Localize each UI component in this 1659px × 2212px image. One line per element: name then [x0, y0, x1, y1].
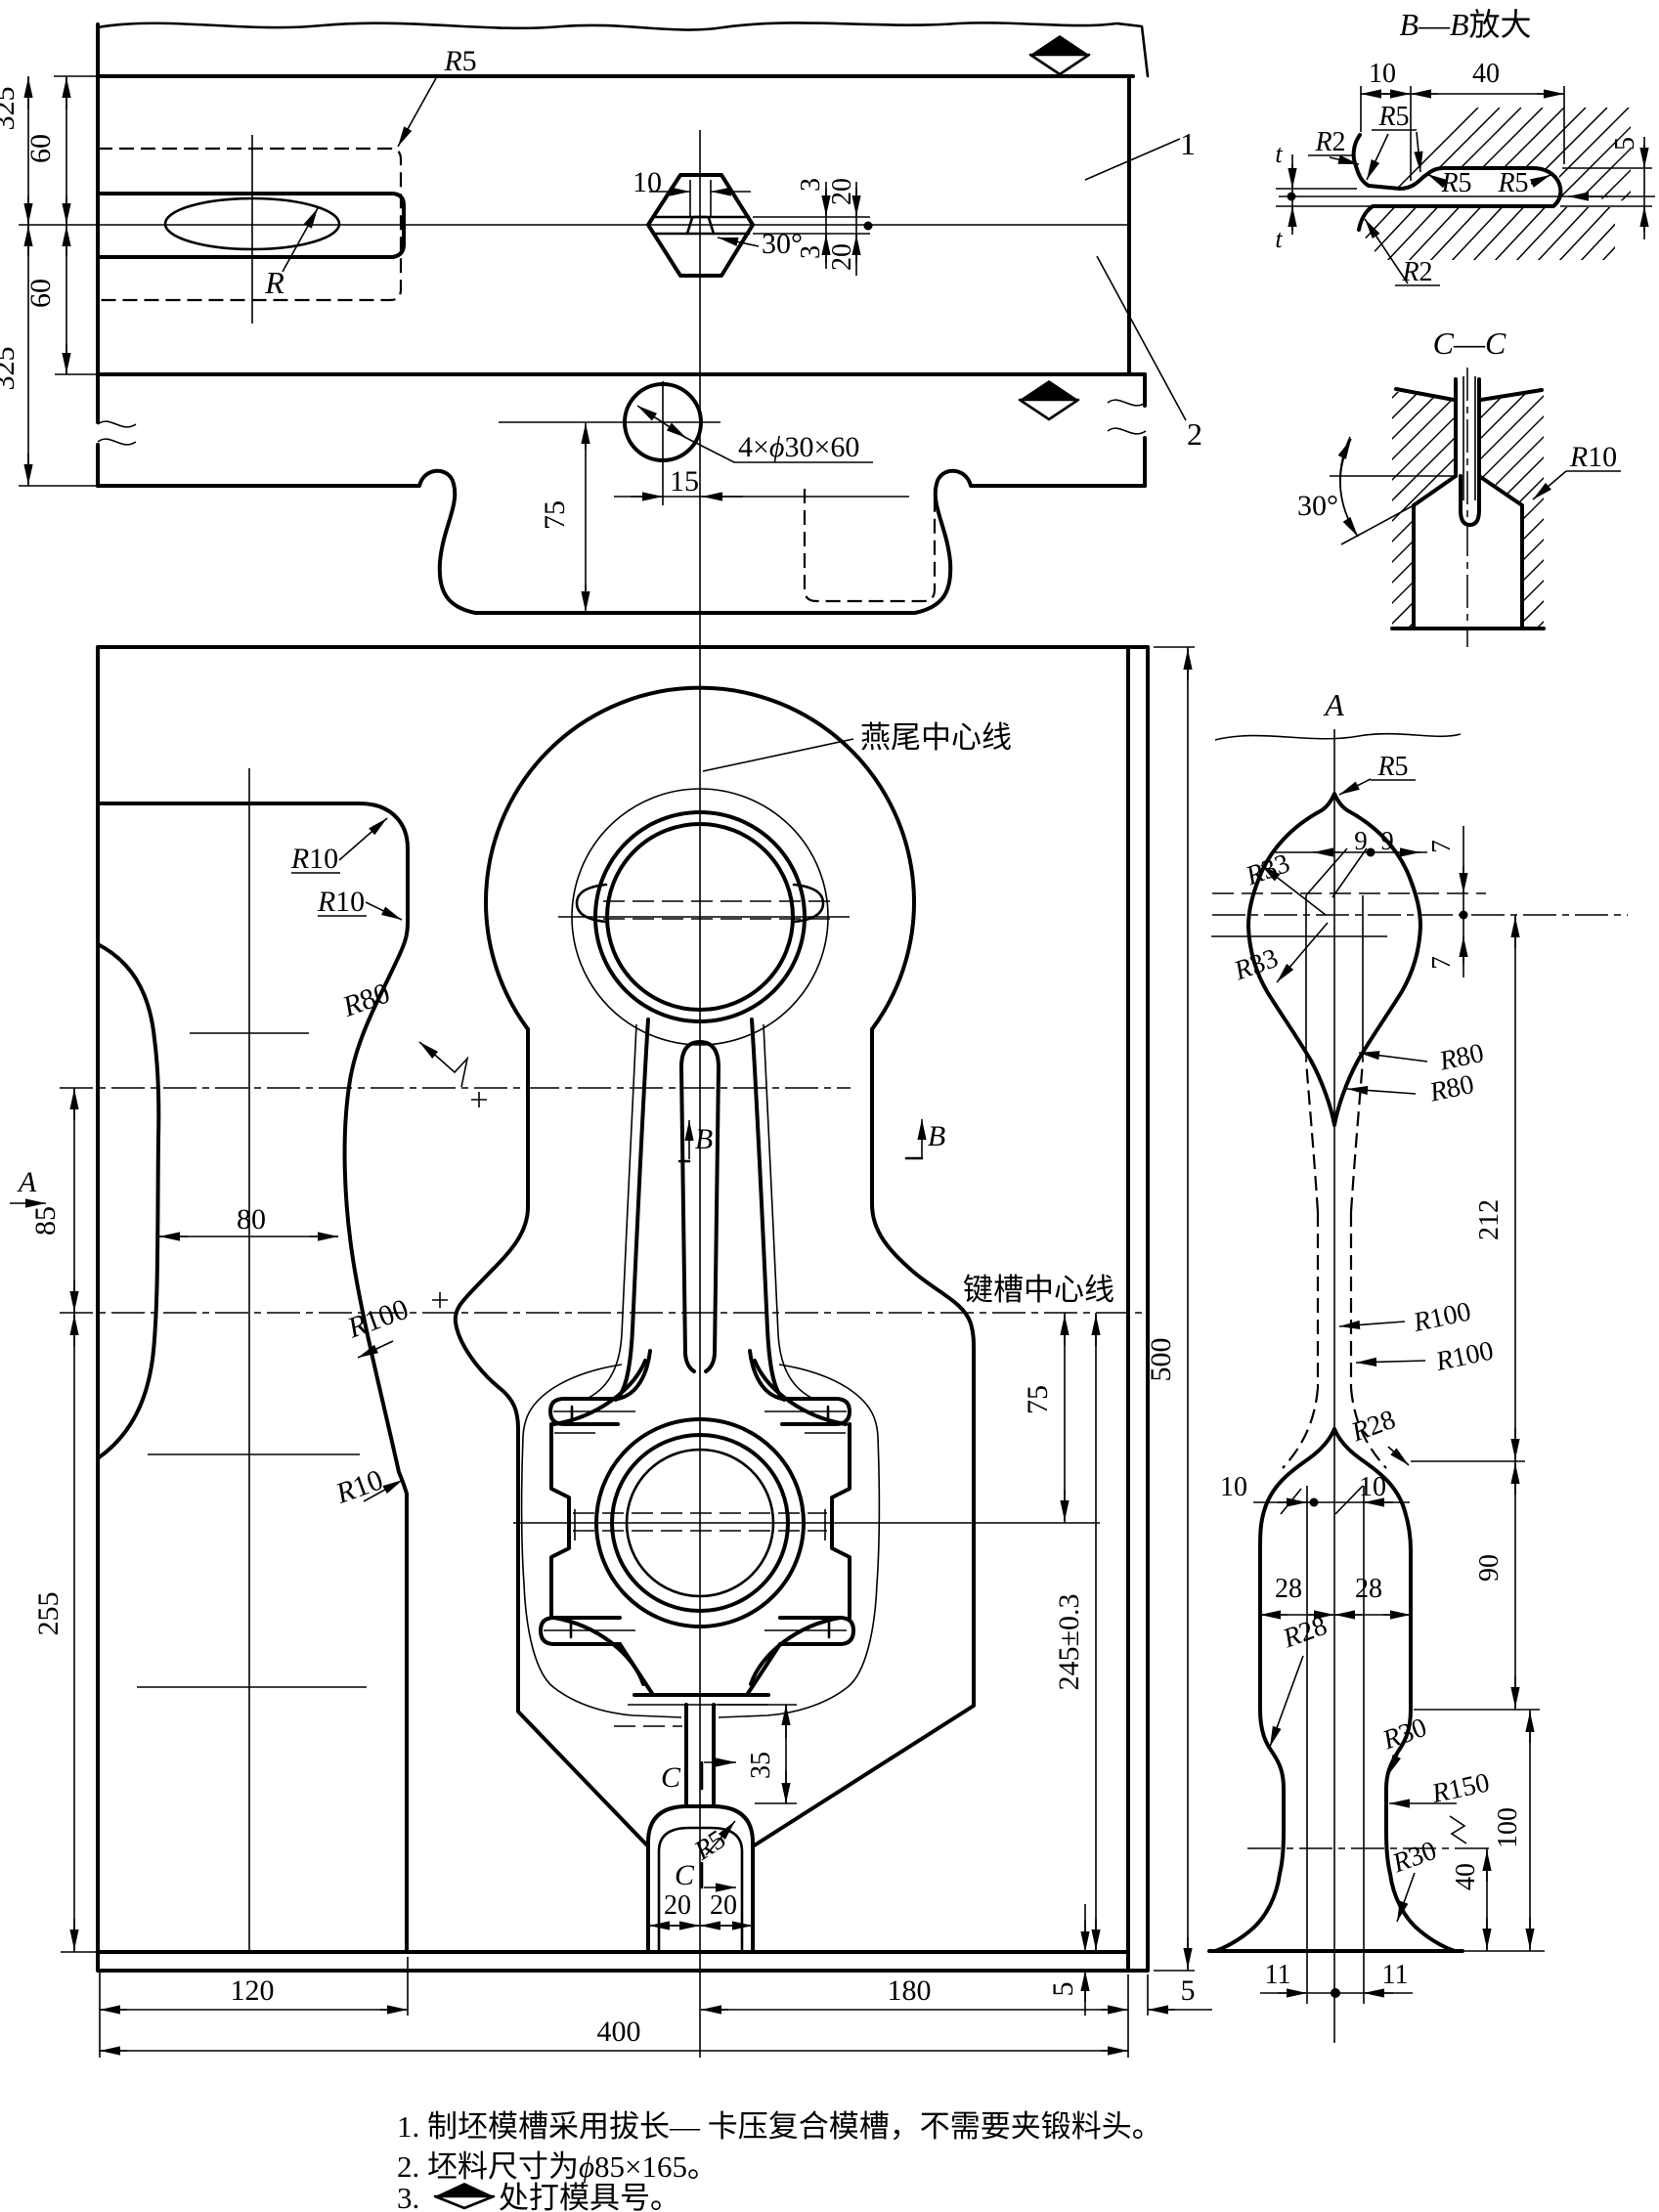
svg-text:325: 325	[0, 347, 21, 391]
svg-text:7: 7	[1426, 840, 1456, 853]
svg-text:4×ϕ30×60: 4×ϕ30×60	[738, 431, 859, 463]
svg-text:20: 20	[710, 1890, 737, 1921]
svg-text:R5: R5	[1377, 102, 1409, 132]
svg-text:5: 5	[1047, 1982, 1079, 1997]
svg-text:245±0.3: 245±0.3	[1053, 1594, 1085, 1691]
svg-text:7: 7	[1426, 956, 1456, 970]
svg-text:20: 20	[827, 243, 857, 271]
svg-text:28: 28	[1355, 1574, 1382, 1604]
svg-text:t: t	[1275, 140, 1283, 168]
svg-text:11: 11	[1265, 1960, 1291, 1990]
svg-text:B: B	[928, 1120, 945, 1152]
svg-text:212: 212	[1474, 1199, 1505, 1240]
svg-text:90: 90	[1474, 1554, 1505, 1582]
svg-text:75: 75	[539, 500, 571, 530]
svg-text:9: 9	[1380, 826, 1394, 855]
svg-text:5: 5	[1610, 137, 1640, 151]
svg-text:R10: R10	[1569, 441, 1617, 473]
svg-text:60: 60	[24, 134, 57, 163]
svg-text:120: 120	[231, 1974, 275, 2007]
svg-text:10: 10	[1220, 1472, 1247, 1502]
svg-text:325: 325	[0, 87, 21, 131]
svg-text:A: A	[17, 1166, 37, 1198]
svg-text:180: 180	[888, 1974, 932, 2007]
svg-text:10: 10	[1369, 59, 1396, 89]
svg-text:30°: 30°	[762, 228, 803, 260]
svg-text:85: 85	[29, 1206, 62, 1236]
svg-text:40: 40	[1451, 1863, 1481, 1890]
svg-text:400: 400	[597, 2016, 641, 2048]
svg-text:C: C	[661, 1761, 681, 1794]
svg-text:35: 35	[746, 1752, 776, 1779]
svg-text:15: 15	[670, 465, 699, 498]
svg-text:R2: R2	[1314, 127, 1345, 157]
svg-text:3.: 3.	[397, 2181, 419, 2212]
svg-text:R5: R5	[443, 45, 476, 77]
svg-text:5: 5	[1181, 1974, 1196, 2007]
svg-text:80: 80	[237, 1203, 266, 1236]
svg-text:3: 3	[796, 178, 826, 192]
svg-text:28: 28	[1275, 1574, 1302, 1604]
svg-text:60: 60	[24, 279, 57, 308]
svg-text:t: t	[1275, 225, 1283, 253]
svg-text:2: 2	[1187, 416, 1202, 452]
svg-text:B: B	[695, 1123, 713, 1155]
svg-text:500: 500	[1145, 1338, 1177, 1382]
svg-text:75: 75	[1022, 1385, 1054, 1414]
svg-text:10: 10	[633, 166, 662, 198]
svg-text:255: 255	[32, 1592, 65, 1636]
svg-text:40: 40	[1472, 59, 1500, 89]
svg-text:R5: R5	[1497, 168, 1528, 198]
svg-text:R5: R5	[1376, 752, 1408, 782]
svg-text:R2: R2	[1401, 257, 1432, 287]
svg-text:30°: 30°	[1297, 490, 1338, 522]
svg-text:1: 1	[1180, 126, 1196, 161]
svg-text:20: 20	[664, 1890, 691, 1921]
svg-text:B—B放大: B—B放大	[1399, 7, 1531, 42]
svg-text:11: 11	[1382, 1960, 1409, 1990]
svg-text:R10: R10	[317, 886, 365, 918]
svg-text:键槽中心线: 键槽中心线	[963, 1273, 1114, 1307]
svg-text:R10: R10	[290, 843, 338, 875]
svg-text:C: C	[675, 1859, 695, 1891]
svg-text:燕尾中心线: 燕尾中心线	[860, 720, 1012, 755]
svg-text:20: 20	[827, 178, 857, 205]
svg-text:处打模具号。: 处打模具号。	[499, 2181, 680, 2212]
svg-text:10: 10	[1359, 1472, 1386, 1502]
svg-text:2. 坯料尺寸为ϕ85×165。: 2. 坯料尺寸为ϕ85×165。	[397, 2149, 718, 2184]
svg-text:A: A	[1323, 687, 1344, 722]
svg-text:100: 100	[1493, 1807, 1523, 1848]
svg-text:1. 制坯模槽采用拔长— 卡压复合模槽，不需要夹锻料头。: 1. 制坯模槽采用拔长— 卡压复合模槽，不需要夹锻料头。	[397, 2109, 1162, 2144]
svg-text:C—C: C—C	[1433, 325, 1506, 361]
svg-text:R: R	[264, 265, 284, 300]
